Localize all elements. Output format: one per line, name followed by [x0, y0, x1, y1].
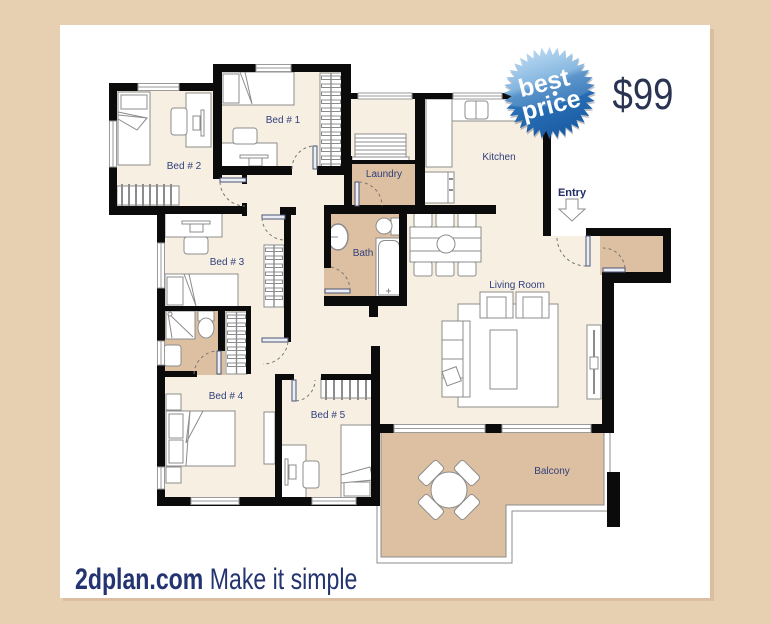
svg-text:Balcony: Balcony [534, 466, 570, 477]
svg-text:Bed # 3: Bed # 3 [210, 257, 245, 268]
svg-text:$99: $99 [613, 69, 674, 119]
svg-text:Bath: Bath [353, 248, 374, 259]
svg-text:Living Room: Living Room [489, 280, 545, 291]
svg-text:2dplan.com Make it simple: 2dplan.com Make it simple [75, 562, 357, 596]
svg-text:Bed # 1: Bed # 1 [266, 115, 301, 126]
svg-text:Bed # 2: Bed # 2 [167, 161, 202, 172]
svg-text:Bed # 5: Bed # 5 [311, 410, 346, 421]
svg-text:Entry: Entry [558, 187, 587, 199]
svg-text:Laundry: Laundry [366, 169, 402, 180]
svg-text:Bed # 4: Bed # 4 [209, 391, 244, 402]
svg-text:Kitchen: Kitchen [482, 152, 515, 163]
